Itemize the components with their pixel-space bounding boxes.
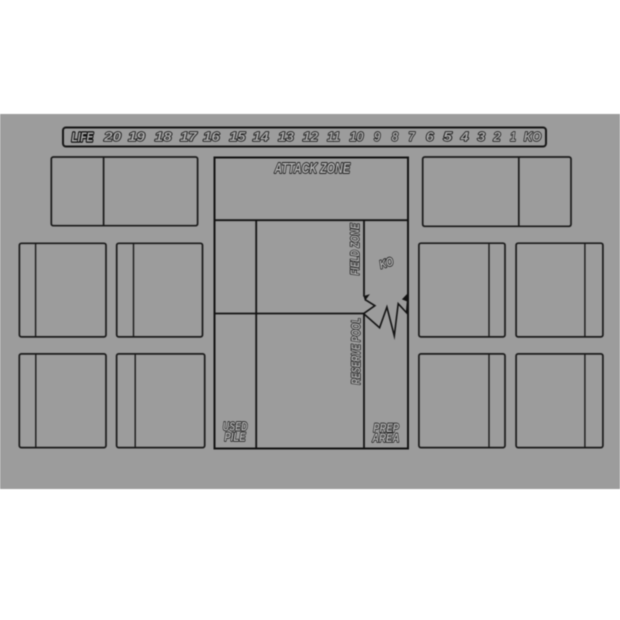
svg-text:20: 20 — [103, 130, 121, 144]
svg-text:7: 7 — [408, 130, 415, 144]
svg-text:9: 9 — [374, 130, 380, 144]
svg-text:LIFE: LIFE — [72, 130, 94, 145]
svg-text:16: 16 — [203, 130, 221, 144]
svg-text:6: 6 — [426, 130, 435, 144]
svg-text:1: 1 — [510, 130, 516, 144]
svg-text:14: 14 — [253, 130, 269, 144]
svg-text:PILE: PILE — [224, 430, 246, 444]
svg-text:15: 15 — [229, 130, 246, 144]
svg-text:FIELD ZONE: FIELD ZONE — [350, 223, 362, 275]
svg-text:AREA: AREA — [371, 431, 399, 445]
svg-text:RESERVE POOL: RESERVE POOL — [351, 318, 363, 385]
svg-text:11: 11 — [327, 130, 340, 144]
svg-text:12: 12 — [303, 130, 319, 144]
svg-text:19: 19 — [128, 130, 145, 144]
svg-text:2: 2 — [492, 130, 500, 144]
svg-text:KO: KO — [524, 130, 542, 144]
svg-text:18: 18 — [155, 130, 172, 144]
svg-text:17: 17 — [180, 130, 198, 144]
svg-text:4: 4 — [460, 130, 469, 144]
svg-text:3: 3 — [477, 130, 485, 144]
svg-text:8: 8 — [392, 130, 399, 144]
svg-text:ATTACK ZONE: ATTACK ZONE — [274, 161, 351, 177]
svg-text:5: 5 — [443, 130, 453, 144]
svg-text:10: 10 — [350, 130, 364, 144]
svg-text:13: 13 — [278, 130, 294, 144]
